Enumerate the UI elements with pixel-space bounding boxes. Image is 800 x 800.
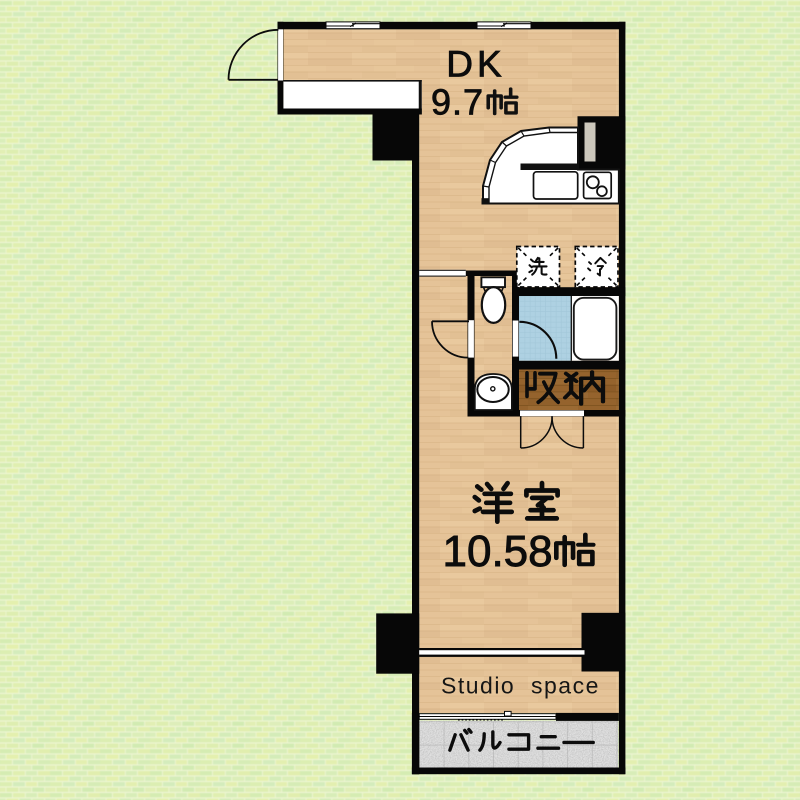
svg-text:Studio space: Studio space [441, 673, 600, 699]
svg-text:9.7: 9.7 [431, 82, 484, 123]
svg-text:DK: DK [446, 44, 505, 85]
svg-text:10.58: 10.58 [443, 527, 553, 576]
